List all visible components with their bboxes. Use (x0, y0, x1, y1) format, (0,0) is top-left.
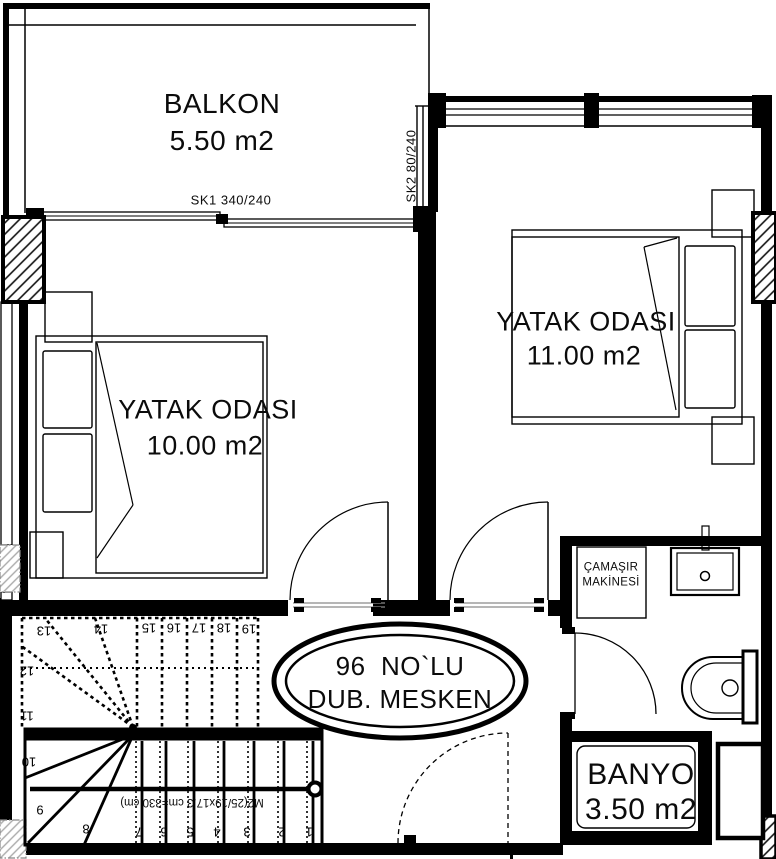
floor-plan: BALKON 5.50 m2 SK1 340/240 SK2 80/240 YA… (0, 0, 776, 859)
stair-step-number: 6 (160, 825, 167, 840)
stair-step-number: 3 (243, 825, 250, 840)
stair-step-number: 9 (36, 803, 43, 818)
stair-step-number: 13 (37, 624, 51, 639)
stair-step-number: 5 (186, 825, 193, 840)
stair-step-number: 11 (20, 709, 34, 724)
stair-step-number: 15 (142, 621, 156, 636)
stair-step-number: 7 (135, 825, 142, 840)
stair-step-number: 4 (213, 825, 220, 840)
stair-step-number: 8 (82, 822, 89, 837)
stair-step-number: 17 (192, 621, 206, 636)
stair-step-number: 12 (20, 664, 34, 679)
stair-step-number: 16 (167, 621, 181, 636)
stair-step-number: 18 (217, 621, 231, 636)
stair-step-number: 2 (278, 825, 285, 840)
stair-step-number: 1 (305, 825, 312, 840)
stair-step-number: 19 (242, 622, 256, 637)
stair-numbers: 12345678910111213141516171819 (0, 0, 776, 859)
stair-step-number: 14 (94, 622, 108, 637)
stair-step-number: 10 (22, 755, 36, 770)
